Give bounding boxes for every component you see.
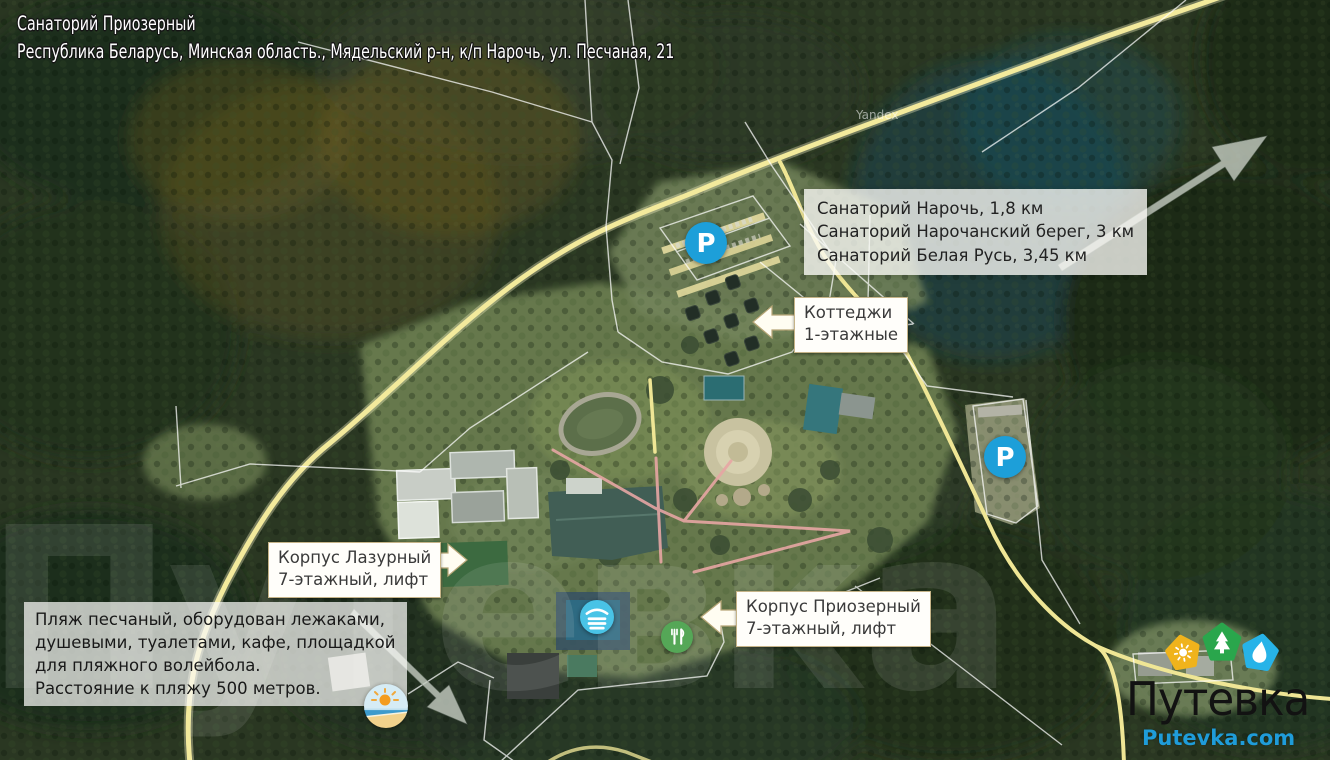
nearby-line: Санаторий Нарочанский берег, 3 км (817, 220, 1134, 243)
header: Санаторий Приозерный Республика Беларусь… (17, 10, 917, 65)
callout-line: Коттеджи (804, 302, 898, 324)
page-title: Санаторий Приозерный (17, 10, 674, 38)
callout-line: 7-этажный, лифт (746, 618, 921, 640)
nearby-distances-box: Санаторий Нарочь, 1,8 км Санаторий Нароч… (804, 189, 1147, 275)
svg-text:P: P (995, 443, 1014, 473)
page-address: Республика Беларусь, Минская область., М… (17, 38, 674, 66)
callout-line: 1-этажные (804, 324, 898, 346)
putevka-site-text: Putevka.com (1142, 726, 1295, 750)
parking-icon: P (684, 221, 728, 265)
putevka-logo-text: Путевка (1126, 672, 1309, 726)
beach-sun-icon (363, 683, 409, 729)
callout-line: 7-этажный, лифт (278, 569, 431, 591)
nearby-line: Санаторий Нарочь, 1,8 км (817, 197, 1134, 220)
beach-note-line: душевыми, туалетами, кафе, площадкой (35, 631, 396, 654)
parking-icon: P (983, 435, 1027, 479)
svg-text:P: P (696, 229, 715, 259)
beach-note-line: для пляжного волейбола. (35, 654, 396, 677)
beach-note-line: Пляж песчаный, оборудован лежаками, (35, 608, 396, 631)
badge-water-drop-icon (1237, 630, 1282, 674)
pool-waves-icon (580, 600, 614, 634)
callout-line: Корпус Приозерный (746, 596, 921, 618)
badge-fir-tree-icon (1201, 622, 1243, 662)
priozerny-callout: Корпус Приозерный 7-этажный, лифт (736, 591, 931, 647)
callout-line: Корпус Лазурный (278, 547, 431, 569)
restaurant-fork-knife-icon (661, 621, 693, 653)
beach-note-line: Расстояние к пляжу 500 метров. (35, 677, 396, 700)
sanatorium-map-screenshot: Путевка Yandex Санаторий Приозерный Респ… (0, 0, 1330, 760)
provider-watermark: Yandex (855, 108, 899, 122)
nearby-line: Санаторий Белая Русь, 3,45 км (817, 244, 1134, 267)
beach-note-box: Пляж песчаный, оборудован лежаками, душе… (24, 602, 407, 706)
cottages-callout: Коттеджи 1-этажные (794, 297, 908, 353)
badge-sun-icon (1161, 631, 1205, 673)
lazurny-callout: Корпус Лазурный 7-этажный, лифт (268, 542, 441, 598)
